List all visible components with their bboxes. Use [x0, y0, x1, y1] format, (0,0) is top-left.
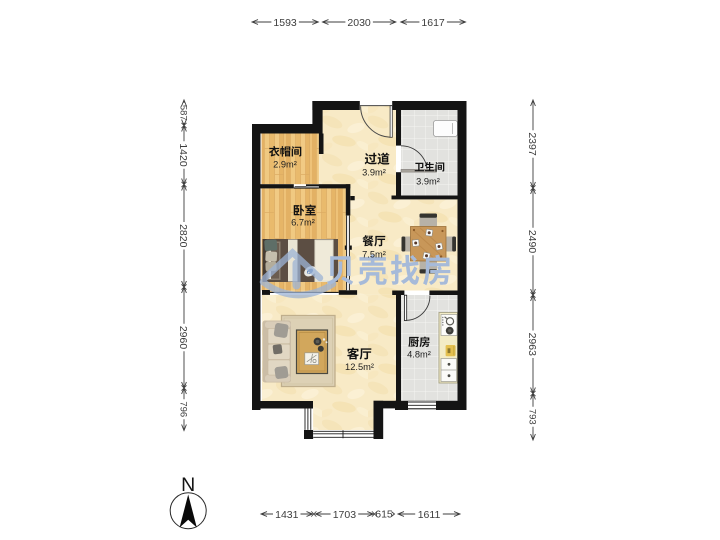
svg-text:2030: 2030 — [347, 17, 371, 29]
svg-text:N: N — [181, 474, 195, 496]
svg-text:1703: 1703 — [333, 509, 357, 521]
svg-text:2490: 2490 — [526, 230, 538, 254]
svg-text:4.8m²: 4.8m² — [407, 350, 431, 360]
svg-text:2960: 2960 — [177, 326, 189, 350]
svg-text:6.7m²: 6.7m² — [291, 218, 315, 228]
svg-text:7.5m²: 7.5m² — [362, 250, 386, 260]
svg-text:3.9m²: 3.9m² — [362, 168, 386, 178]
svg-text:1593: 1593 — [273, 17, 297, 29]
svg-text:1431: 1431 — [275, 509, 299, 521]
svg-text:2963: 2963 — [526, 333, 538, 357]
svg-text:2397: 2397 — [526, 132, 538, 156]
svg-text:12.5m²: 12.5m² — [345, 362, 374, 372]
svg-text:1420: 1420 — [177, 143, 189, 167]
svg-text:1617: 1617 — [421, 17, 445, 29]
svg-text:793: 793 — [527, 409, 538, 425]
svg-text:2.9m²: 2.9m² — [273, 160, 297, 170]
svg-text:796: 796 — [178, 401, 189, 417]
svg-text:1611: 1611 — [418, 509, 441, 521]
svg-text:615: 615 — [375, 509, 393, 521]
svg-text:3.9m²: 3.9m² — [416, 177, 440, 187]
svg-text:2820: 2820 — [177, 224, 189, 248]
svg-text:587: 587 — [178, 105, 189, 121]
